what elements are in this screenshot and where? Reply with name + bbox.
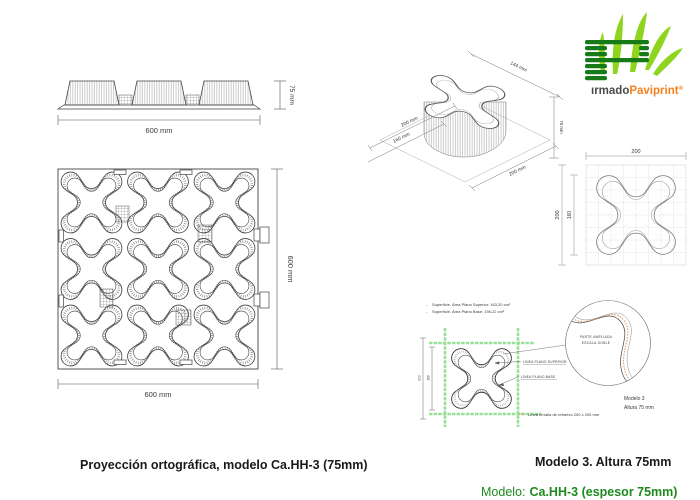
cell-left-inner-label: 160 — [567, 211, 573, 220]
cell-top-label: 200 — [631, 149, 640, 155]
dimension-plan-bottom — [58, 379, 258, 389]
elevation-height-label: 75 mm — [288, 85, 295, 105]
model-value: Ca.HH-3 (espesor 75mm) — [529, 485, 677, 499]
rebar-note: Línea ferralla de refuerzo 200 x 200 mm — [528, 412, 600, 417]
registered-mark: ® — [679, 85, 684, 92]
surface-superior-note: Superficie. Área Plano Superior: 163,20 … — [432, 302, 511, 307]
iso-top-label: 144 mm — [509, 60, 528, 73]
model-label: Modelo: — [481, 485, 525, 499]
model-designation: Modelo:Ca.HH-3 (espesor 75mm) — [481, 485, 677, 499]
logo-prefix: ırmado — [591, 85, 629, 97]
brand-logo: ırmadoPaviprint® — [583, 12, 693, 100]
detail-dim-inner-label: 160 — [427, 375, 431, 381]
linea-plano-superior-label: LÍNEA PLANO SUPERIOR — [523, 360, 567, 364]
dimension-height — [274, 81, 286, 109]
elevation-width-label: 600 mm — [145, 126, 172, 135]
dimension-plan-right — [271, 169, 283, 369]
bullet-1: - — [426, 302, 428, 307]
mold-frame — [58, 169, 258, 369]
bridge-connectors — [100, 206, 212, 325]
detail-model-line1: Modelo 3 — [624, 396, 645, 402]
plan-cells — [61, 172, 255, 366]
dimension-width — [58, 115, 260, 125]
bullet-2: - — [426, 309, 428, 314]
plan-right-label: 600 mm — [286, 255, 295, 282]
iso-height-label: 75 mm — [559, 120, 563, 134]
zoom-title-line2: ESCALA DOBLE — [582, 341, 611, 345]
detail-dim-outer-label: 200 — [418, 375, 422, 381]
iso-left-outer-label: 160 mm — [392, 131, 411, 144]
logo-brand: Paviprint — [629, 85, 678, 97]
surface-base-note: Superficie. Área Plano Base: 196,22 cm² — [432, 309, 505, 314]
plan-view: 600 mm 600 mm — [55, 166, 305, 404]
cell-left-outer-label: 200 — [555, 210, 561, 219]
construction-grid — [586, 165, 686, 265]
cell-dimension-view: 200 200 160 — [553, 143, 700, 295]
zoom-title-line1: PARTE AMPLIADA — [580, 335, 613, 339]
elevation-view: 75 mm 600 mm — [55, 58, 300, 136]
detail-view: - Superficie. Área Plano Superior: 163,2… — [415, 290, 700, 445]
cell-dimension-lines — [558, 152, 686, 265]
iso-bottom-right-label: 200 mm — [508, 164, 527, 177]
isometric-view: 144 mm 75 mm 200 mm 200 mm 160 mm — [368, 40, 563, 195]
plan-bottom-label: 600 mm — [144, 390, 171, 399]
caption-orthographic: Proyección ortográfica, modelo Ca.HH-3 (… — [80, 458, 368, 472]
detail-cell-outline — [452, 349, 512, 409]
detail-model-line2: Altura 75 mm — [624, 405, 654, 411]
mold-bumps — [65, 81, 253, 105]
elevation-drawing: 75 mm 600 mm — [58, 81, 295, 135]
caption-model: Modelo 3. Altura 75mm — [535, 455, 671, 469]
linea-plano-base-label: LÍNEA PLANO BASE — [521, 375, 556, 379]
logo-wordmark: ırmadoPaviprint® — [591, 85, 684, 97]
iso-left-inner-label: 200 mm — [400, 115, 419, 128]
